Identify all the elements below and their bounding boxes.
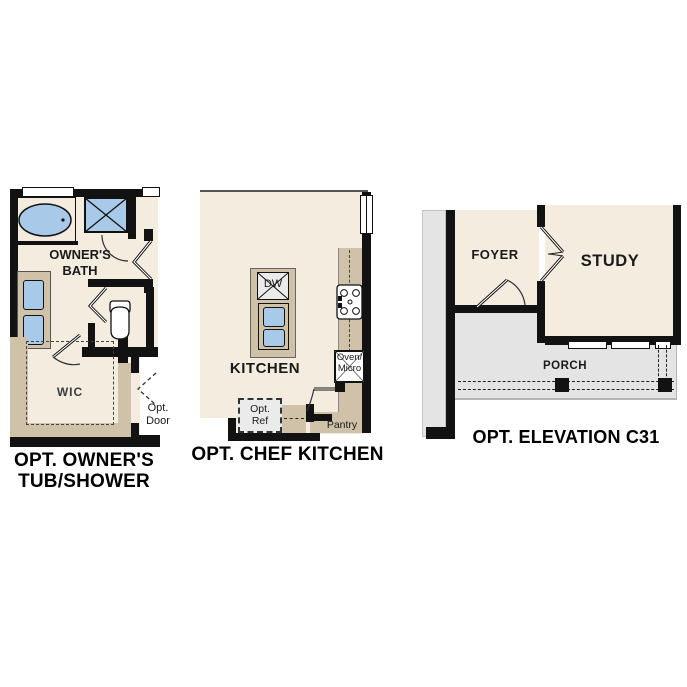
opt-door-label: Opt. Door (136, 402, 180, 427)
oven-line2: Micro (334, 364, 365, 375)
plan2-caption: OPT. CHEF KITCHEN (190, 444, 385, 465)
french-doors-icon (541, 227, 563, 281)
foyer-door-icon (477, 280, 525, 307)
opt-door-dashed-arc (138, 373, 156, 405)
ref-line2: Ref (238, 415, 282, 427)
plan-chef-kitchen: DW Oven/ Micro KITCHEN Opt. Ref Pantry (198, 190, 376, 444)
study-label: STUDY (570, 252, 650, 272)
bath-room-label: OWNER'S BATH (30, 247, 130, 278)
kitchen-label: KITCHEN (210, 360, 320, 378)
shower-x-icon (85, 198, 127, 232)
bath-label-line2: BATH (30, 263, 130, 279)
plan-owners-tub-shower: OWNER'S BATH WIC Opt. Door (10, 185, 180, 451)
foyer-label: FOYER (460, 247, 530, 263)
ref-line1: Opt. (238, 403, 282, 415)
opt-ref-label: Opt. Ref (238, 403, 282, 427)
bifold-door-icon (134, 241, 151, 279)
plan3-linework (422, 205, 684, 445)
wc-door-icon (90, 288, 106, 322)
plan-elevation-c31: FOYER STUDY PORCH (422, 205, 684, 445)
plan1-caption-line2: TUB/SHOWER (8, 471, 160, 492)
pantry-door-icon (307, 389, 335, 411)
plan3-caption: OPT. ELEVATION C31 (452, 427, 680, 447)
floorplan-sheet: OWNER'S BATH WIC Opt. Door OPT. OWNER'S … (0, 0, 687, 687)
opt-door-line1: Opt. (136, 402, 180, 415)
porch-label: PORCH (520, 360, 610, 374)
oven-micro-label: Oven/ Micro (334, 353, 365, 375)
bath-label-line1: OWNER'S (30, 247, 130, 263)
toilet-icon (110, 301, 130, 339)
tub-icon (19, 204, 71, 236)
cooktop-icon (337, 285, 362, 319)
plan1-caption: OPT. OWNER'S TUB/SHOWER (8, 450, 160, 493)
plan2-linework (198, 190, 376, 444)
opt-door-line2: Door (136, 415, 180, 428)
dw-label: DW (257, 278, 289, 291)
plan1-caption-line1: OPT. OWNER'S (8, 450, 160, 471)
pantry-label: Pantry (320, 419, 364, 431)
wic-label: WIC (40, 385, 100, 399)
wic-door-arc (53, 335, 80, 365)
